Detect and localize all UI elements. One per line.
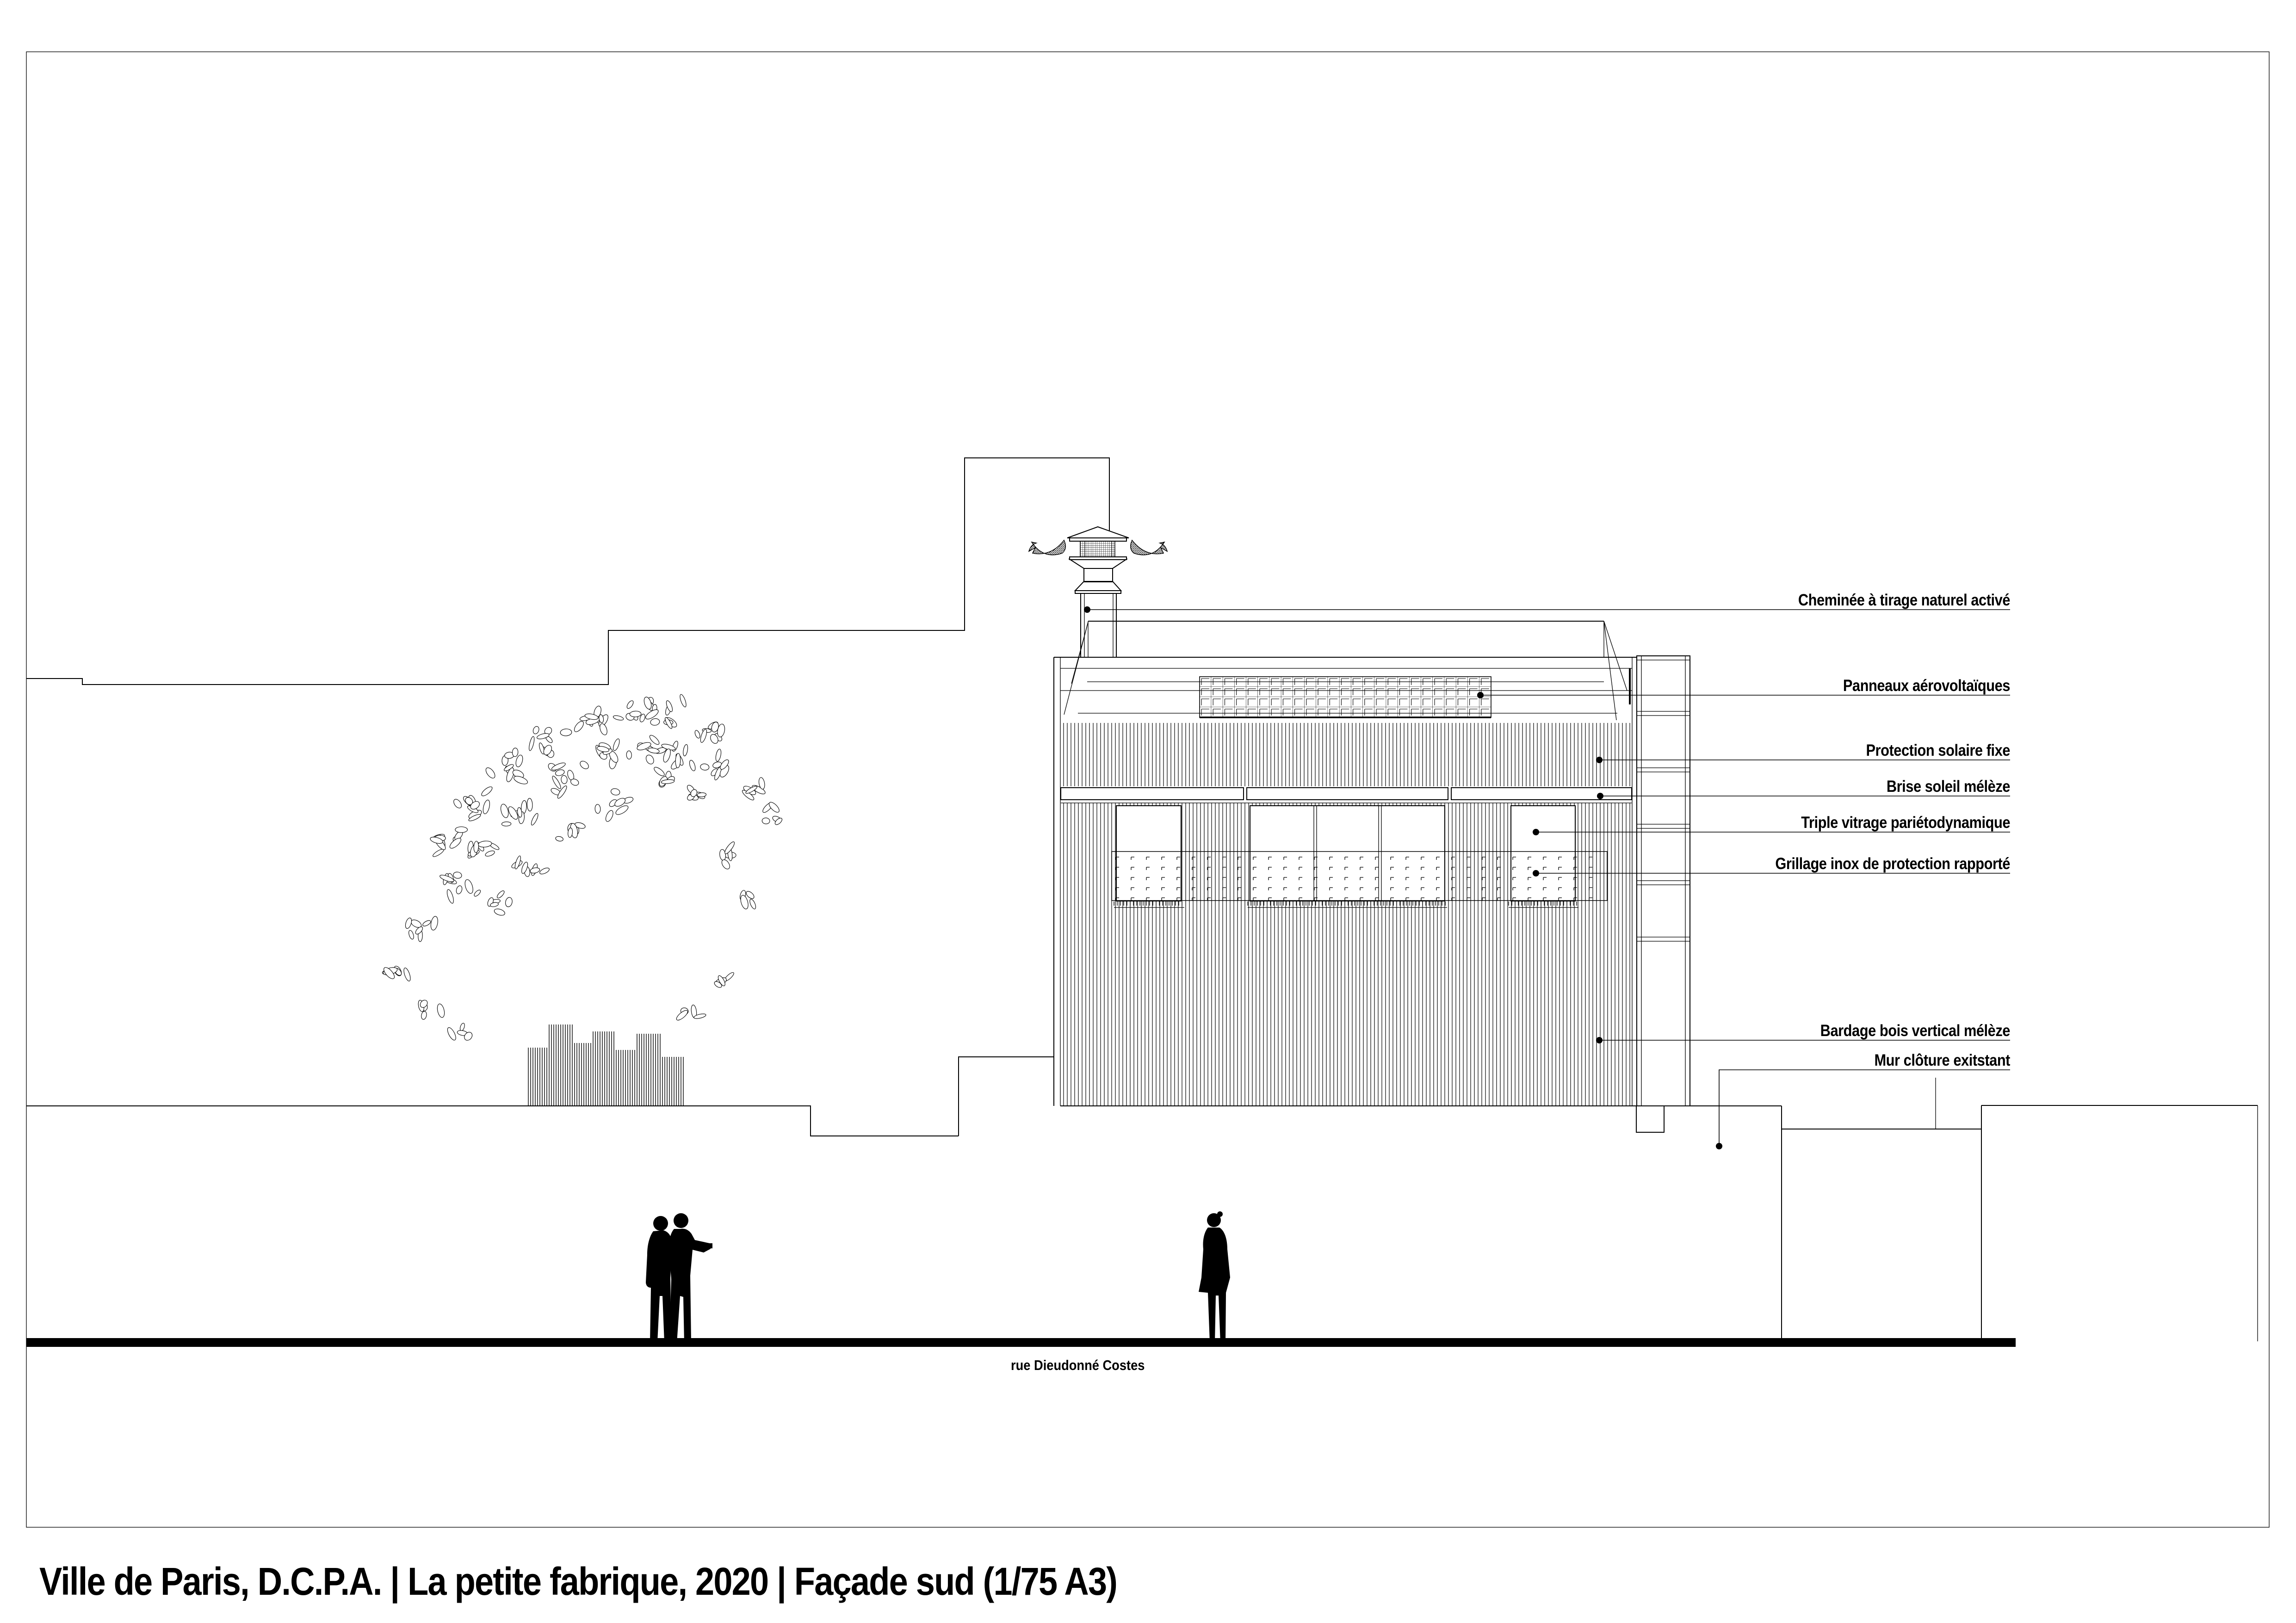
bardage-hatch: [1060, 723, 1632, 1106]
ground-line: [26, 1338, 2016, 1347]
annotation-label: Protection solaire fixe: [1866, 741, 2010, 759]
annotation-label: Panneaux aérovoltaïques: [1843, 676, 2010, 694]
window-right: [1511, 806, 1575, 901]
annotation-label: Brise soleil mélèze: [1887, 777, 2010, 795]
solar-panels: [1200, 677, 1491, 717]
annotation-label: Mur clôture exitstant: [1874, 1051, 2010, 1069]
facade-drawing-sheet: rue Dieudonné Costes Cheminée à tirage n…: [0, 0, 2296, 1623]
annotation-label: Bardage bois vertical mélèze: [1820, 1021, 2010, 1039]
street-label: rue Dieudonné Costes: [1011, 1358, 1145, 1373]
sheet-title: Ville de Paris, D.C.P.A. | La petite fab…: [39, 1560, 1117, 1604]
window-center: [1250, 806, 1445, 901]
brise-soleil-band: [1061, 786, 1632, 803]
tree-trunk: [527, 1024, 685, 1106]
window-left: [1116, 806, 1181, 901]
frame-pedestal: [1636, 1106, 1664, 1132]
annotation-label: Grillage inox de protection rapporté: [1775, 854, 2010, 872]
annotation-label: Triple vitrage pariétodynamique: [1801, 813, 2010, 831]
annotation-label: Cheminée à tirage naturel activé: [1798, 591, 2010, 609]
